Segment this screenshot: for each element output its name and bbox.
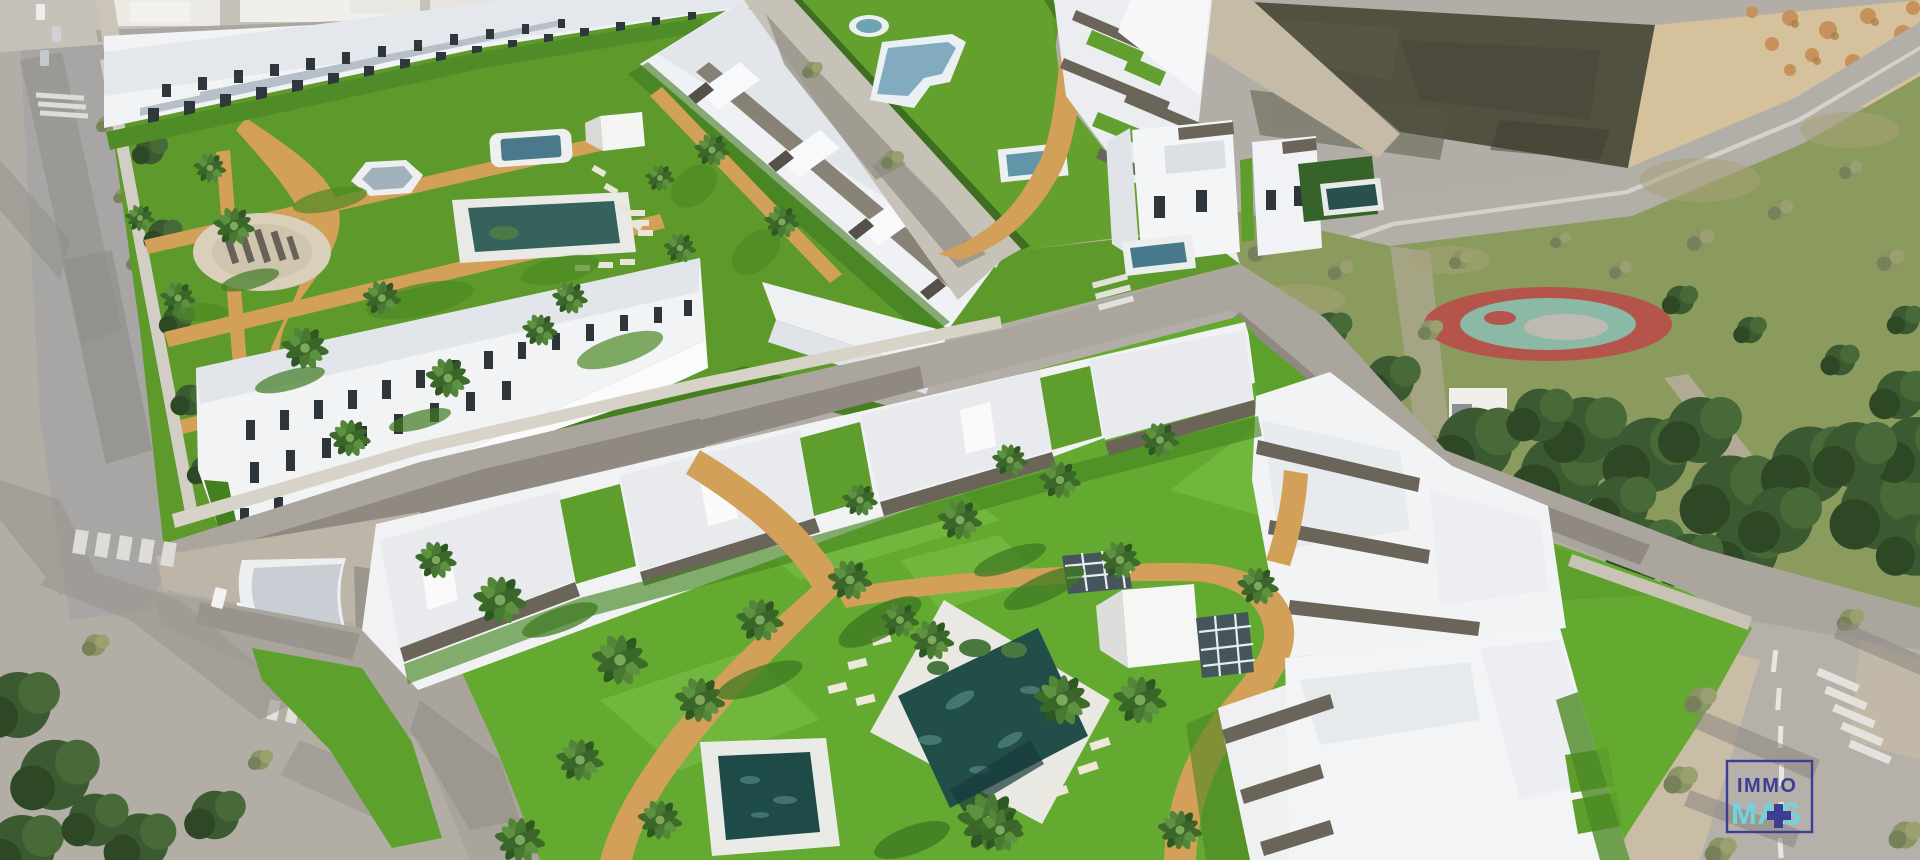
svg-text:IMMO: IMMO xyxy=(1737,775,1797,797)
